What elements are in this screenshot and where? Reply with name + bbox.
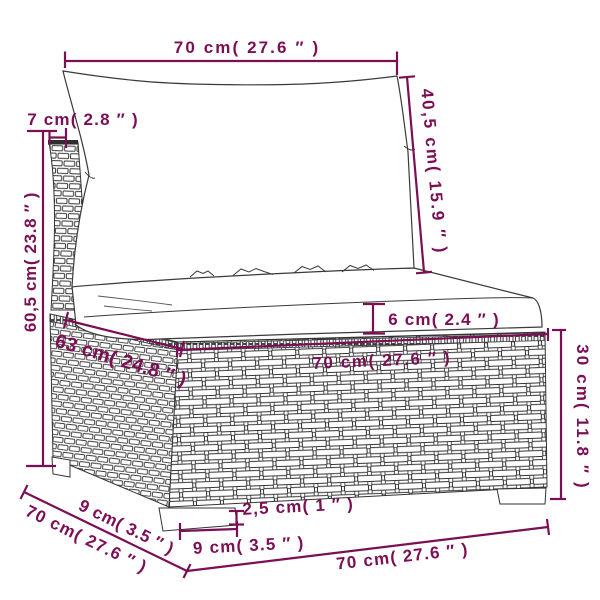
svg-text:7 cm( 2.8 ″ ): 7 cm( 2.8 ″ ) (27, 110, 139, 129)
svg-text:70 cm( 27.6 ″ ): 70 cm( 27.6 ″ ) (174, 38, 320, 57)
svg-text:60,5 cm( 23.8 ″ ): 60,5 cm( 23.8 ″ ) (21, 192, 40, 332)
svg-text:6 cm( 2.4 ″ ): 6 cm( 2.4 ″ ) (388, 310, 500, 329)
svg-text:30 cm( 11.8 ″ ): 30 cm( 11.8 ″ ) (573, 344, 592, 490)
